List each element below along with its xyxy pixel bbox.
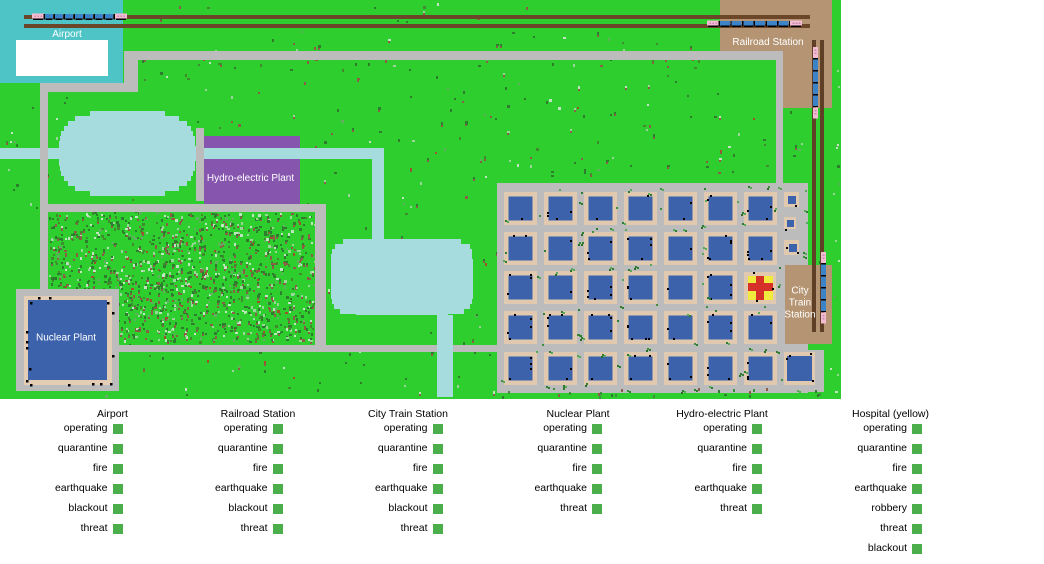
svg-text:Train: Train: [789, 298, 811, 309]
svg-text:Airport: Airport: [52, 29, 82, 40]
svg-text:Station: Station: [784, 310, 815, 321]
svg-text:City: City: [791, 286, 808, 297]
svg-text:Nuclear Plant: Nuclear Plant: [36, 333, 96, 344]
svg-text:Railroad Station: Railroad Station: [732, 37, 803, 48]
svg-text:Hydro-electric Plant: Hydro-electric Plant: [207, 173, 294, 184]
